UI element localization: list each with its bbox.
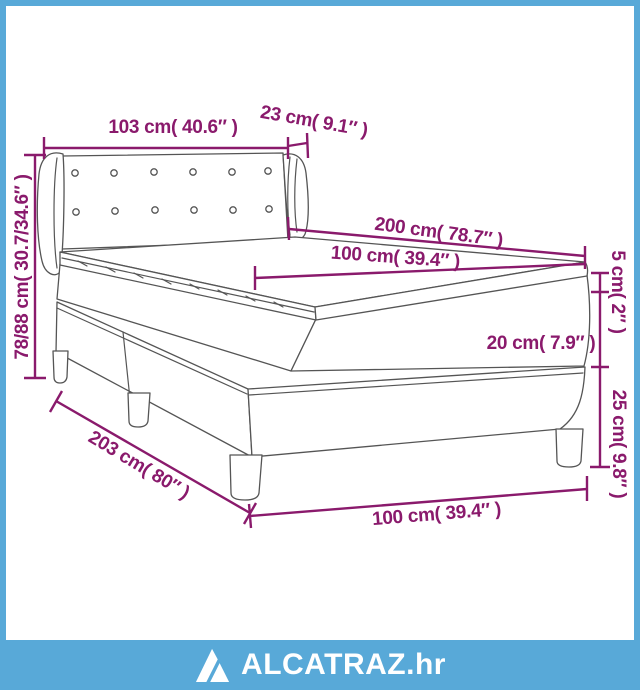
frame-border-right — [634, 0, 640, 640]
bed-leg — [128, 393, 150, 427]
bed-leg — [556, 429, 583, 467]
bed-dimension-diagram: 103 cm( 40.6″ ) 23 cm( 9.1″ ) 78/88 cm( … — [0, 0, 640, 690]
dim-headboard-width: 103 cm( 40.6″ ) — [44, 117, 288, 159]
headboard-width-label: 103 cm( 40.6″ ) — [108, 117, 237, 138]
mattress-height-label: 20 cm( 7.9″ ) — [487, 333, 596, 354]
frame-border-top — [0, 0, 640, 6]
headboard — [62, 153, 288, 249]
dim-base-width: 100 cm( 39.4″ ) — [249, 476, 587, 530]
headboard-depth-label: 23 cm( 9.1″ ) — [259, 102, 370, 142]
dim-base-height: 25 cm( 9.8″ ) — [590, 367, 629, 498]
brand-bar: ALCATRAZ.hr — [0, 640, 640, 690]
base-height-label: 25 cm( 9.8″ ) — [608, 390, 629, 499]
brand-name: ALCATRAZ.hr — [241, 648, 446, 682]
frame-border-left — [0, 0, 6, 640]
mountain-logo-icon — [194, 647, 232, 683]
base-length-label: 203 cm( 80″ ) — [85, 427, 194, 504]
bed-leg — [230, 455, 262, 500]
dim-headboard-depth: 23 cm( 9.1″ ) — [259, 102, 370, 158]
dim-topper-height: 5 cm( 2″ ) — [591, 250, 628, 333]
topper-height-label: 5 cm( 2″ ) — [607, 250, 628, 333]
headboard-height-label: 78/88 cm( 30.7/34.6″ ) — [12, 174, 33, 359]
bed-leg — [53, 351, 68, 383]
